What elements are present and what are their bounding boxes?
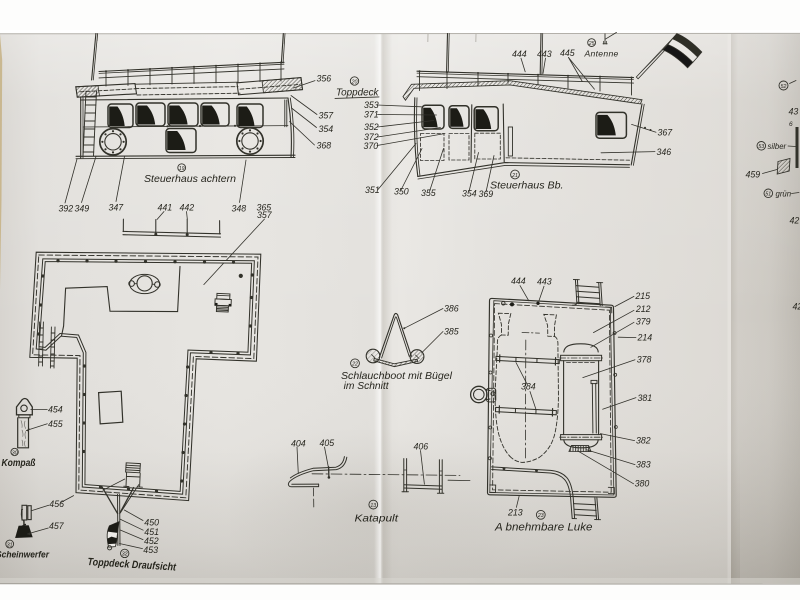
svg-text:380: 380 <box>635 479 650 489</box>
svg-text:13: 13 <box>370 503 376 509</box>
svg-text:378: 378 <box>637 355 652 365</box>
svg-text:382: 382 <box>636 435 651 445</box>
svg-text:Katapult: Katapult <box>355 514 400 525</box>
svg-text:Antenne: Antenne <box>584 49 619 59</box>
svg-text:silber: silber <box>768 142 787 151</box>
svg-text:Steuerhaus achtern: Steuerhaus achtern <box>144 174 236 185</box>
svg-text:21: 21 <box>511 173 518 179</box>
svg-text:368: 368 <box>317 141 332 151</box>
svg-text:453: 453 <box>143 545 158 555</box>
svg-text:381: 381 <box>638 393 653 403</box>
svg-text:384: 384 <box>521 382 536 392</box>
svg-text:383: 383 <box>636 459 651 469</box>
svg-text:352: 352 <box>364 122 379 132</box>
svg-text:367: 367 <box>658 127 674 137</box>
svg-text:441: 441 <box>158 202 173 212</box>
svg-text:348: 348 <box>232 203 247 213</box>
svg-text:443: 443 <box>537 277 552 287</box>
svg-text:212: 212 <box>635 304 651 314</box>
svg-text:6: 6 <box>789 121 793 128</box>
svg-text:349: 349 <box>75 203 90 213</box>
svg-text:213: 213 <box>507 507 523 517</box>
svg-text:346: 346 <box>657 147 672 157</box>
svg-text:351: 351 <box>365 185 380 195</box>
svg-text:52: 52 <box>781 84 787 90</box>
svg-text:353: 353 <box>364 100 379 110</box>
svg-text:30: 30 <box>12 450 18 456</box>
svg-text:444: 444 <box>512 49 527 59</box>
svg-text:347: 347 <box>109 203 125 213</box>
svg-text:Kompaß: Kompaß <box>2 458 36 469</box>
svg-text:454: 454 <box>48 405 63 415</box>
svg-text:42: 42 <box>793 302 800 312</box>
svg-text:357: 357 <box>257 210 273 220</box>
svg-text:404: 404 <box>291 438 306 448</box>
svg-text:51: 51 <box>765 192 771 198</box>
svg-text:442: 442 <box>180 202 195 212</box>
svg-text:53: 53 <box>758 144 764 150</box>
svg-text:32: 32 <box>122 552 128 558</box>
svg-text:A bnehmbare Luke: A bnehmbare Luke <box>494 522 593 534</box>
svg-text:459: 459 <box>746 169 761 179</box>
svg-text:25: 25 <box>588 41 595 47</box>
svg-text:215: 215 <box>634 291 650 301</box>
svg-text:406: 406 <box>414 442 429 452</box>
svg-text:20: 20 <box>351 79 358 85</box>
svg-text:354: 354 <box>462 189 477 199</box>
svg-text:43: 43 <box>789 107 799 117</box>
svg-text:im Schnitt: im Schnitt <box>344 381 390 392</box>
svg-text:355: 355 <box>421 188 436 198</box>
svg-text:386: 386 <box>444 303 459 313</box>
svg-text:457: 457 <box>49 521 65 531</box>
svg-text:Scheinwerfer: Scheinwerfer <box>0 549 50 560</box>
svg-text:356: 356 <box>317 74 332 84</box>
svg-text:444: 444 <box>511 276 526 286</box>
svg-text:445: 445 <box>560 48 575 58</box>
svg-text:grün: grün <box>776 190 792 199</box>
svg-text:357: 357 <box>319 111 335 121</box>
svg-text:455: 455 <box>48 419 63 429</box>
svg-text:371: 371 <box>364 110 379 120</box>
svg-text:23: 23 <box>537 513 544 519</box>
svg-text:22: 22 <box>351 362 358 368</box>
svg-text:370: 370 <box>364 141 379 151</box>
svg-text:450: 450 <box>144 517 159 527</box>
svg-text:350: 350 <box>394 187 409 197</box>
svg-text:19: 19 <box>179 166 185 172</box>
svg-text:385: 385 <box>444 327 459 337</box>
svg-text:456: 456 <box>49 499 64 509</box>
svg-text:379: 379 <box>636 317 651 327</box>
svg-text:214: 214 <box>637 332 653 342</box>
svg-text:354: 354 <box>319 124 334 134</box>
svg-text:42: 42 <box>790 216 800 226</box>
svg-text:392: 392 <box>59 204 74 214</box>
svg-text:405: 405 <box>320 438 335 448</box>
svg-text:31: 31 <box>7 542 13 548</box>
svg-text:443: 443 <box>537 49 552 59</box>
svg-text:Steuerhaus Bb.: Steuerhaus Bb. <box>490 181 564 192</box>
